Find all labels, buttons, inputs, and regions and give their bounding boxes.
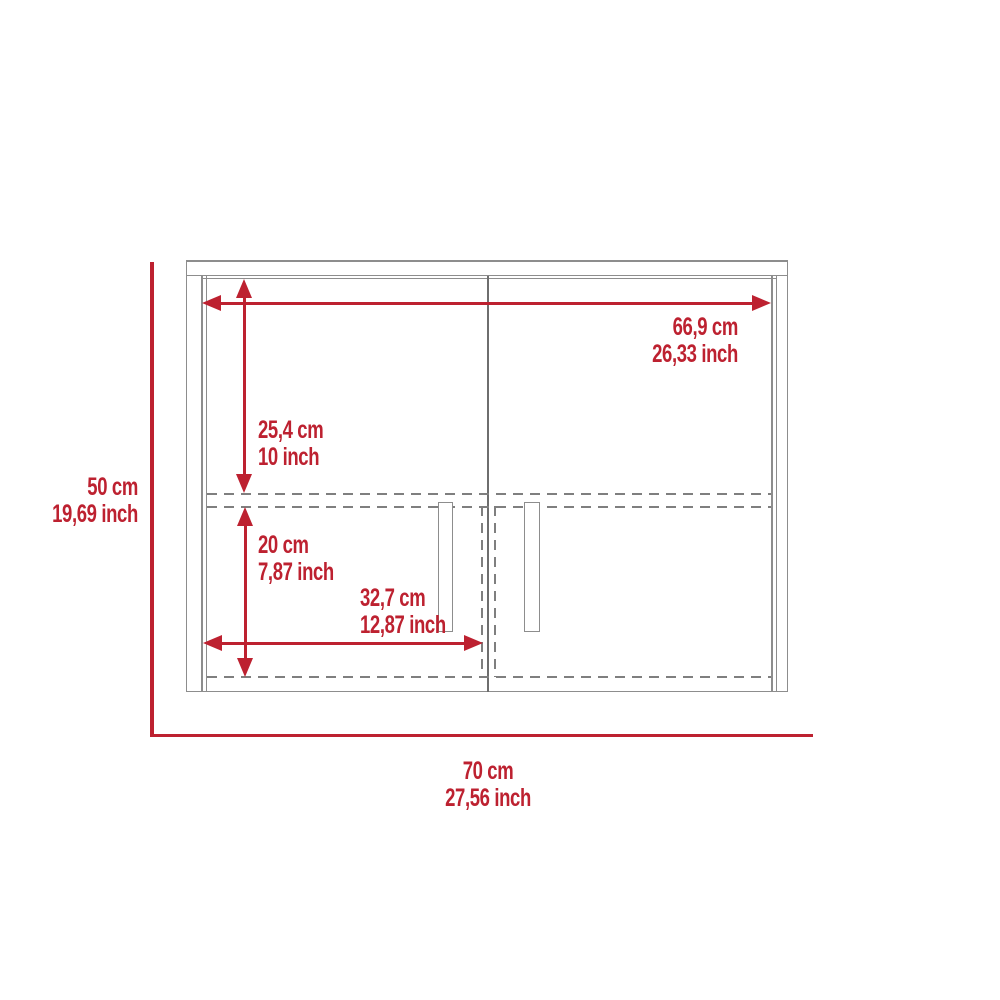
inner-width-inch-label: 26,33 inch [652,341,738,368]
cabinet-right-outer-edge [787,260,789,692]
door-width-inch-label: 12,87 inch [360,612,446,639]
cabinet-left-inner-edge-a [201,276,203,692]
upper-section-inch-label: 10 inch [258,444,323,471]
arrowhead-left-icon [203,635,222,651]
cabinet-dimension-diagram: 66,9 cm 26,33 inch 25,4 cm 10 inch 20 cm… [0,0,1000,1000]
cabinet-left-inner-edge-b [206,276,207,692]
lower-section-cm-label: 20 cm [258,532,334,559]
lower-section-dimension-label: 20 cm 7,87 inch [258,532,334,586]
lower-section-inch-label: 7,87 inch [258,559,334,586]
cabinet-right-inner-edge-a [771,276,773,692]
overall-height-cm-label: 50 cm [52,474,138,501]
door-dashed-edge-right [494,506,496,677]
arrowhead-down-icon [237,658,253,677]
shelf-dashed-line-upper-a [207,493,771,495]
door-width-dimension-label: 32,7 cm 12,87 inch [360,585,446,639]
inner-width-dimension-label: 66,9 cm 26,33 inch [652,314,738,368]
arrowhead-right-icon [464,635,483,651]
overall-height-dimension-label: 50 cm 19,69 inch [52,474,138,528]
overall-height-inch-label: 19,69 inch [52,501,138,528]
arrowhead-up-icon [236,279,252,298]
arrowhead-left-icon [202,295,221,311]
cabinet-top-band-line-b [201,278,777,279]
door-dashed-edge-left [481,506,483,677]
upper-section-cm-label: 25,4 cm [258,417,323,444]
door-width-cm-label: 32,7 cm [360,585,446,612]
arrowhead-up-icon [237,507,253,526]
shelf-dashed-line-lower [207,676,771,678]
overall-width-dimension-label: 70 cm 27,56 inch [445,758,531,812]
overall-width-extent-line [150,734,813,738]
arrowhead-right-icon [752,295,771,311]
cabinet-top-edge [186,260,788,262]
upper-section-dimension-label: 25,4 cm 10 inch [258,417,323,471]
shelf-dashed-line-upper-b [207,506,771,508]
door-divider [487,276,490,692]
cabinet-left-outer-edge [186,260,188,692]
overall-width-cm-label: 70 cm [445,758,531,785]
right-door-handle [524,502,540,632]
arrowhead-down-icon [236,474,252,493]
cabinet-right-inner-edge-b [776,276,777,692]
inner-width-cm-label: 66,9 cm [652,314,738,341]
overall-height-extent-line [150,262,154,737]
overall-width-inch-label: 27,56 inch [445,785,531,812]
